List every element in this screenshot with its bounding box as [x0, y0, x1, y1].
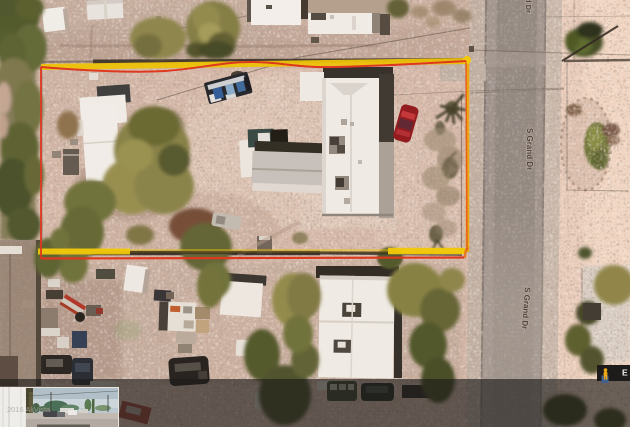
svg-text:E: E — [622, 368, 628, 378]
svg-text:2016 AliVista: 2016 AliVista — [7, 405, 51, 414]
